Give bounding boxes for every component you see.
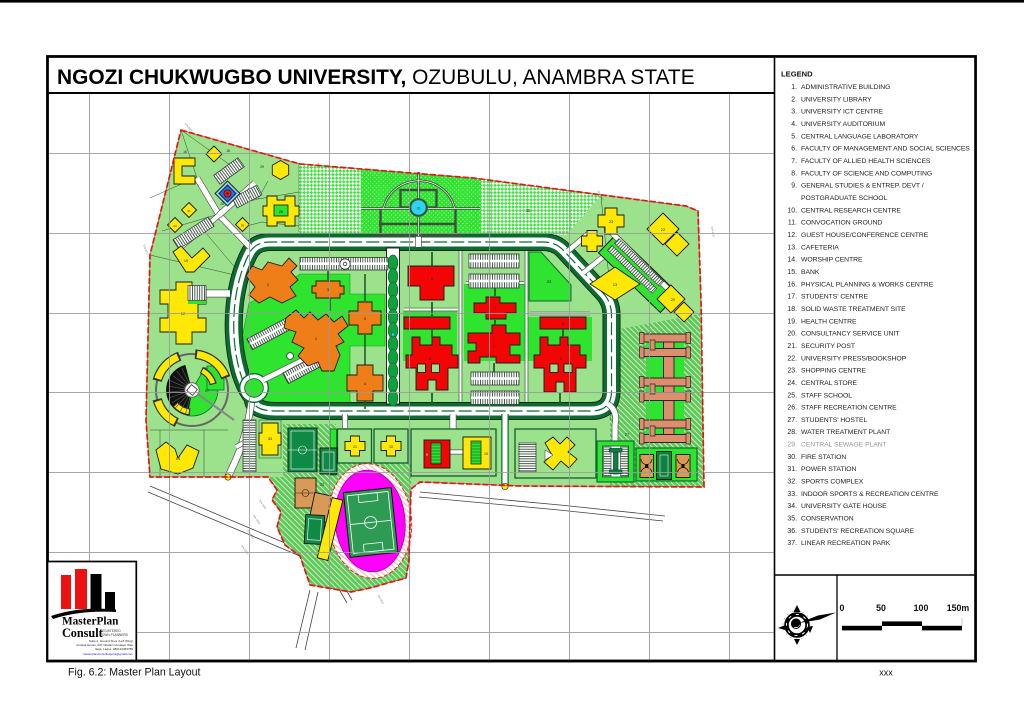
svg-text:xxx: xxx (879, 668, 893, 678)
svg-text:0: 0 (840, 603, 845, 613)
svg-text:CONVOCATION GROUND: CONVOCATION GROUND (801, 220, 882, 227)
svg-text:14.: 14. (787, 257, 797, 264)
svg-text:STAFF RECREATION CENTRE: STAFF RECREATION CENTRE (801, 405, 897, 412)
svg-text:27.: 27. (787, 417, 797, 424)
svg-text:18: 18 (226, 149, 230, 153)
svg-text:CENTRAL RESEARCH CENTRE: CENTRAL RESEARCH CENTRE (801, 207, 901, 214)
svg-text:33: 33 (268, 437, 272, 441)
svg-text:37.: 37. (787, 540, 797, 547)
svg-text:18.: 18. (787, 306, 797, 313)
svg-text:17.: 17. (787, 294, 797, 301)
svg-text:23.: 23. (787, 368, 797, 375)
svg-text:22.: 22. (787, 355, 797, 362)
svg-text:13.: 13. (787, 244, 797, 251)
svg-text:13: 13 (613, 283, 617, 287)
svg-text:34.: 34. (787, 503, 797, 510)
svg-text:32.: 32. (787, 479, 797, 486)
svg-text:Ikeja, Lagos. 080123456789: Ikeja, Lagos. 080123456789 (95, 647, 133, 651)
svg-text:30.: 30. (787, 454, 797, 461)
svg-text:26: 26 (279, 210, 283, 214)
svg-text:STUDENTS' HOSTEL: STUDENTS' HOSTEL (801, 417, 867, 424)
svg-text:6.: 6. (791, 146, 797, 153)
svg-text:CONSULTANCY SERVICE UNIT: CONSULTANCY SERVICE UNIT (801, 331, 899, 338)
svg-text:36: 36 (417, 207, 421, 211)
svg-text:8.: 8. (791, 170, 797, 177)
svg-text:STUDENTS' RECREATION SQUARE: STUDENTS' RECREATION SQUARE (801, 528, 915, 535)
svg-text:32: 32 (320, 482, 325, 487)
svg-text:24.: 24. (787, 380, 797, 387)
svg-text:50: 50 (876, 603, 886, 613)
svg-text:12.: 12. (787, 232, 797, 239)
svg-text:36.: 36. (787, 528, 797, 535)
svg-text:CONSERVATION: CONSERVATION (801, 516, 854, 523)
svg-text:Fig. 6.2: Master Plan Layout: Fig. 6.2: Master Plan Layout (68, 667, 201, 679)
svg-text:SOLID WASTE TREATMENT SITE: SOLID WASTE TREATMENT SITE (801, 306, 906, 313)
svg-text:28.: 28. (787, 429, 797, 436)
svg-text:150m: 150m (947, 603, 970, 613)
svg-text:33.: 33. (787, 491, 797, 498)
svg-text:NGOZI CHUKWUGBO UNIVERSITY, OZ: NGOZI CHUKWUGBO UNIVERSITY, OZUBULU, ANA… (57, 66, 695, 89)
svg-text:20.: 20. (787, 331, 797, 338)
svg-text:10: 10 (484, 452, 488, 456)
svg-text:SHOPPING CENTRE: SHOPPING CENTRE (801, 368, 866, 375)
svg-text:10.: 10. (787, 207, 797, 214)
svg-text:PHYSICAL PLANNING & WORKS CENT: PHYSICAL PLANNING & WORKS CENTRE (801, 281, 934, 288)
svg-text:UNIVERSITY AUDITORIUM: UNIVERSITY AUDITORIUM (801, 121, 885, 128)
svg-text:LEGEND: LEGEND (781, 70, 813, 79)
svg-text:21.: 21. (787, 343, 797, 350)
svg-text:FACULTY OF SCIENCE AND COMPUTI: FACULTY OF SCIENCE AND COMPUTING (801, 170, 932, 177)
svg-text:1.: 1. (791, 84, 797, 91)
svg-text:7.: 7. (791, 158, 797, 165)
svg-text:POWER STATION: POWER STATION (801, 466, 857, 473)
svg-text:ADMINISTRATIVE BUILDING: ADMINISTRATIVE BUILDING (801, 84, 890, 91)
svg-text:STAFF SCHOOL: STAFF SCHOOL (801, 392, 852, 399)
svg-text:100: 100 (914, 603, 929, 613)
svg-text:35.: 35. (787, 516, 797, 523)
svg-text:BANK: BANK (801, 269, 820, 276)
svg-text:SECURITY POST: SECURITY POST (801, 343, 855, 350)
svg-text:29: 29 (260, 165, 264, 169)
svg-text:34: 34 (547, 279, 552, 284)
svg-text:CAFETERIA: CAFETERIA (801, 244, 839, 251)
svg-text:21: 21 (353, 445, 357, 449)
svg-text:31.: 31. (787, 466, 797, 473)
svg-text:9.: 9. (791, 183, 797, 190)
svg-text:CENTRAL SEWAGE PLANT: CENTRAL SEWAGE PLANT (801, 442, 887, 449)
svg-text:11.: 11. (788, 220, 797, 227)
svg-text:2.: 2. (791, 96, 797, 103)
svg-text:22: 22 (661, 228, 665, 232)
svg-text:14: 14 (176, 456, 181, 461)
svg-text:GENERAL STUDIES & ENTREP. DEVT: GENERAL STUDIES & ENTREP. DEVT / (801, 183, 924, 190)
svg-text:31: 31 (187, 209, 191, 213)
svg-text:15.: 15. (787, 269, 797, 276)
svg-text:UNIVERSITY PRESS/BOOKSHOP: UNIVERSITY PRESS/BOOKSHOP (801, 355, 907, 362)
svg-text:30: 30 (241, 224, 245, 228)
svg-text:19: 19 (184, 259, 188, 263)
svg-text:GUEST HOUSE/CONFERENCE CENTRE: GUEST HOUSE/CONFERENCE CENTRE (801, 232, 929, 239)
svg-text:UNIVERSITY GATE HOUSE: UNIVERSITY GATE HOUSE (801, 503, 887, 510)
svg-text:FIRE STATION: FIRE STATION (801, 454, 846, 461)
svg-text:23: 23 (609, 220, 613, 224)
svg-text:CENTRAL LANGUAGE LABORATORY: CENTRAL LANGUAGE LABORATORY (801, 133, 919, 140)
svg-text:FACULTY OF MANAGEMENT AND SOCI: FACULTY OF MANAGEMENT AND SOCIAL SCIENCE… (801, 146, 970, 153)
svg-text:9: 9 (426, 453, 428, 457)
svg-text:HEALTH CENTRE: HEALTH CENTRE (801, 318, 857, 325)
svg-text:WORSHIP CENTRE: WORSHIP CENTRE (801, 257, 863, 264)
svg-text:FACULTY OF ALLIED HEALTH SCIEN: FACULTY OF ALLIED HEALTH SCIENCES (801, 158, 931, 165)
svg-text:28: 28 (220, 202, 224, 206)
svg-text:3.: 3. (791, 109, 797, 116)
svg-text:UNIVERSITY LIBRARY: UNIVERSITY LIBRARY (801, 96, 872, 103)
svg-text:INDOOR SPORTS & RECREATION CEN: INDOOR SPORTS & RECREATION CENTRE (801, 491, 939, 498)
svg-text:4.: 4. (791, 121, 797, 128)
svg-text:29.: 29. (787, 442, 797, 449)
svg-text:LINEAR RECREATION PARK: LINEAR RECREATION PARK (801, 540, 891, 547)
svg-text:SPORTS COMPLEX: SPORTS COMPLEX (801, 479, 864, 486)
svg-text:masterplanconsultnigeria@gmail: masterplanconsultnigeria@gmail.com (83, 652, 134, 656)
svg-text:POSTGRADUATE SCHOOL: POSTGRADUATE SCHOOL (801, 195, 888, 202)
svg-text:CENTRAL STORE: CENTRAL STORE (801, 380, 858, 387)
svg-text:5.: 5. (791, 133, 797, 140)
svg-text:16.: 16. (787, 281, 797, 288)
svg-text:20: 20 (671, 298, 675, 302)
svg-text:15: 15 (389, 445, 393, 449)
svg-text:UNIVERSITY ICT CENTRE: UNIVERSITY ICT CENTRE (801, 109, 884, 116)
svg-text:WATER TREATMENT PLANT: WATER TREATMENT PLANT (801, 429, 890, 436)
svg-text:TOWN PLANNERS: TOWN PLANNERS (100, 633, 128, 637)
svg-text:19.: 19. (787, 318, 797, 325)
svg-text:25.: 25. (787, 392, 797, 399)
svg-text:24: 24 (173, 224, 177, 228)
svg-text:27: 27 (625, 432, 630, 437)
svg-text:26.: 26. (787, 405, 797, 412)
svg-text:STUDENTS' CENTRE: STUDENTS' CENTRE (801, 294, 868, 301)
svg-text:35: 35 (526, 208, 531, 213)
svg-text:Consult: Consult (62, 626, 103, 640)
